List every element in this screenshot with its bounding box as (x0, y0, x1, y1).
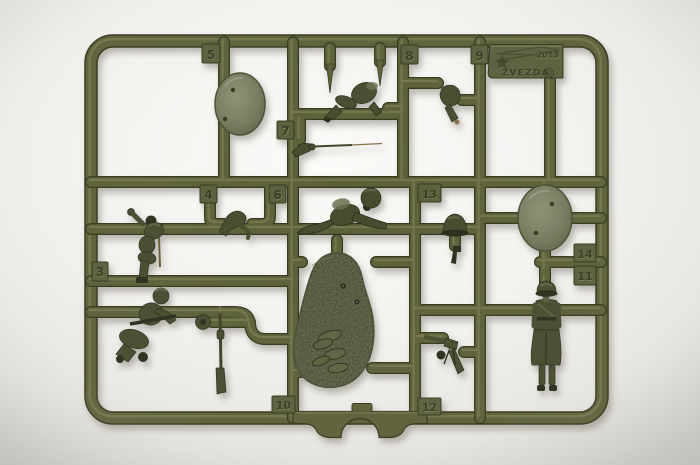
sprue-photo: 2013 2013 ZVEZDA ZVEZDA © (0, 0, 700, 465)
photo-vignette (0, 0, 700, 465)
